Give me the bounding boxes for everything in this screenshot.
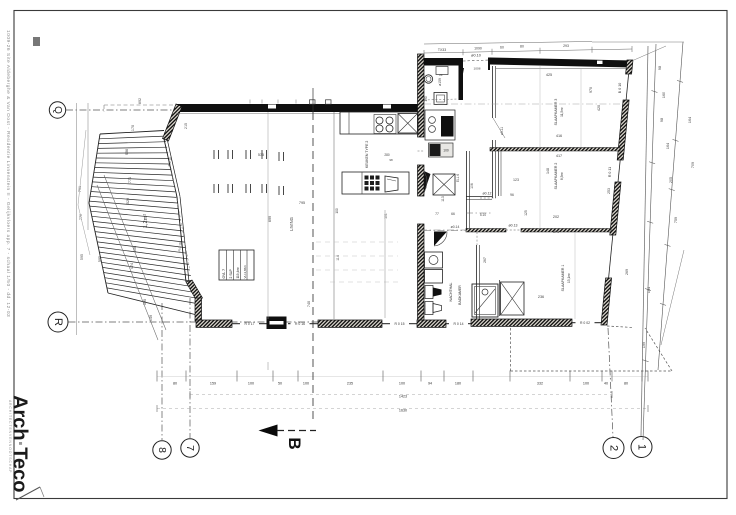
svg-text:SLAAPKAMER 3: SLAAPKAMER 3	[554, 99, 558, 126]
svg-text:8: 8	[156, 447, 168, 453]
svg-text:R 0 14: R 0 14	[454, 322, 464, 326]
svg-text:1423: 1423	[399, 395, 407, 399]
svg-text:160: 160	[662, 92, 666, 98]
svg-text:2 SLP: 2 SLP	[229, 269, 233, 279]
svg-text:94: 94	[428, 382, 432, 386]
svg-text:R 0 11: R 0 11	[608, 167, 612, 177]
svg-text:77: 77	[435, 212, 439, 216]
svg-text:66: 66	[451, 212, 455, 216]
svg-text:R 0 15: R 0 15	[395, 322, 405, 326]
svg-text:KEUKEN TYPE 2: KEUKEN TYPE 2	[365, 141, 369, 168]
svg-text:98: 98	[389, 158, 393, 162]
svg-text:253: 253	[607, 188, 611, 194]
svg-text:892: 892	[138, 98, 142, 104]
svg-text:759: 759	[674, 217, 678, 223]
svg-text:1090: 1090	[474, 47, 482, 51]
svg-text:125: 125	[524, 210, 528, 216]
svg-text:771: 771	[128, 177, 132, 183]
svg-text:280: 280	[384, 153, 390, 157]
svg-text:40: 40	[604, 382, 608, 386]
svg-text:180: 180	[455, 382, 461, 386]
svg-text:5.10: 5.10	[480, 213, 486, 217]
svg-text:Q: Q	[52, 106, 63, 114]
svg-text:11,5m²: 11,5m²	[560, 107, 564, 117]
svg-text:148: 148	[546, 168, 550, 174]
svg-text:371: 371	[553, 230, 559, 234]
svg-text:98: 98	[660, 118, 664, 122]
svg-text:R: R	[52, 318, 64, 326]
svg-text:236: 236	[538, 295, 544, 299]
svg-text:B 0 10: B 0 10	[618, 83, 622, 93]
svg-text:7: 7	[184, 445, 196, 451]
svg-text:TX33: TX33	[438, 48, 446, 52]
svg-text:113: 113	[441, 196, 445, 202]
svg-text:1630: 1630	[399, 409, 407, 413]
svg-text:235: 235	[347, 382, 353, 386]
svg-text:417: 417	[556, 154, 562, 158]
svg-text:A R C H I T E C T E N V E N N: A R C H I T E C T E N V E N N O O T S C …	[8, 400, 12, 473]
svg-text:164: 164	[688, 117, 692, 123]
svg-text:80: 80	[624, 382, 628, 386]
svg-text:267: 267	[483, 257, 487, 263]
svg-text:100: 100	[335, 208, 339, 214]
svg-text:100: 100	[303, 382, 309, 386]
svg-text:1008: 1008	[474, 67, 481, 71]
svg-text:100: 100	[248, 382, 254, 386]
svg-text:170: 170	[131, 125, 135, 131]
svg-text:202: 202	[553, 215, 559, 219]
svg-text:332: 332	[537, 382, 543, 386]
svg-text:123: 123	[513, 178, 519, 182]
svg-text:420: 420	[597, 105, 601, 111]
svg-text:709: 709	[691, 162, 695, 168]
svg-text:970: 970	[589, 87, 593, 93]
svg-text:R 0 16: R 0 16	[295, 322, 305, 326]
svg-text:SLAAPKAMER 2: SLAAPKAMER 2	[554, 163, 558, 190]
svg-text:8,5m²: 8,5m²	[560, 172, 564, 180]
svg-text:130: 130	[424, 96, 428, 102]
svg-text:996: 996	[125, 149, 129, 155]
svg-text:205: 205	[669, 177, 673, 183]
svg-text:ø0.10: ø0.10	[471, 54, 481, 58]
svg-text:199: 199	[642, 342, 646, 348]
svg-text:80: 80	[173, 382, 177, 386]
svg-text:80: 80	[520, 45, 524, 49]
svg-text:R 0 02: R 0 02	[580, 321, 590, 325]
svg-text:416: 416	[556, 134, 562, 138]
svg-text:699: 699	[268, 216, 272, 222]
svg-text:GVL 7: GVL 7	[222, 269, 226, 279]
svg-text:50: 50	[278, 382, 282, 386]
svg-text:100: 100	[443, 149, 449, 153]
svg-text:B: B	[285, 437, 304, 449]
svg-text:ø0.12: ø0.12	[483, 192, 492, 196]
svg-text:100: 100	[399, 382, 405, 386]
svg-text:106: 106	[470, 183, 474, 189]
svg-text:108: 108	[133, 246, 137, 252]
svg-text:1: 1	[636, 444, 648, 450]
svg-text:164: 164	[647, 287, 651, 293]
svg-text:LIVING: LIVING	[289, 217, 294, 231]
svg-text:ø159: ø159	[438, 78, 442, 86]
svg-text:149: 149	[149, 315, 153, 321]
svg-text:474: 474	[130, 263, 134, 269]
svg-text:293: 293	[563, 44, 569, 48]
svg-text:13,1m²: 13,1m²	[567, 273, 571, 283]
svg-text:60: 60	[500, 46, 504, 50]
svg-text:215: 215	[184, 123, 188, 129]
svg-text:ø0.13: ø0.13	[509, 224, 518, 228]
svg-text:425: 425	[546, 73, 552, 77]
svg-text:SLAAPKAMER 1: SLAAPKAMER 1	[561, 265, 565, 292]
svg-text:ELL 6: ELL 6	[456, 174, 460, 182]
svg-text:269: 269	[625, 269, 629, 275]
svg-text:2: 2	[608, 445, 620, 451]
svg-text:2F: 2F	[439, 73, 443, 77]
svg-text:96: 96	[510, 193, 514, 197]
svg-text:BADKAMER: BADKAMER	[458, 285, 462, 305]
svg-text:ø0.11: ø0.11	[500, 127, 504, 135]
svg-text:529: 529	[126, 198, 130, 204]
svg-text:100: 100	[583, 382, 589, 386]
svg-text:101: 101	[384, 213, 388, 219]
svg-text:535: 535	[258, 153, 264, 157]
svg-text:ø0.14: ø0.14	[451, 225, 460, 229]
svg-text:1,2m²: 1,2m²	[143, 214, 149, 228]
svg-text:NACHTHAL: NACHTHAL	[449, 283, 453, 302]
svg-text:159: 159	[210, 382, 216, 386]
svg-text:595: 595	[98, 256, 102, 262]
svg-text:164: 164	[666, 143, 670, 149]
svg-text:595: 595	[143, 299, 147, 305]
svg-text:114: 114	[336, 255, 340, 261]
svg-text:98: 98	[658, 66, 662, 70]
svg-text:1009-26 Site Aldeberghe & Van: 1009-26 Site Aldeberghe & Van Oost - Res…	[5, 30, 11, 317]
svg-text:595: 595	[80, 254, 84, 260]
svg-text:119,4m²: 119,4m²	[236, 267, 240, 278]
svg-text:795: 795	[299, 201, 305, 205]
svg-text:R 0 17: R 0 17	[245, 322, 255, 326]
svg-text:740: 740	[307, 301, 311, 307]
svg-text:VH 2,86m: VH 2,86m	[243, 265, 247, 279]
